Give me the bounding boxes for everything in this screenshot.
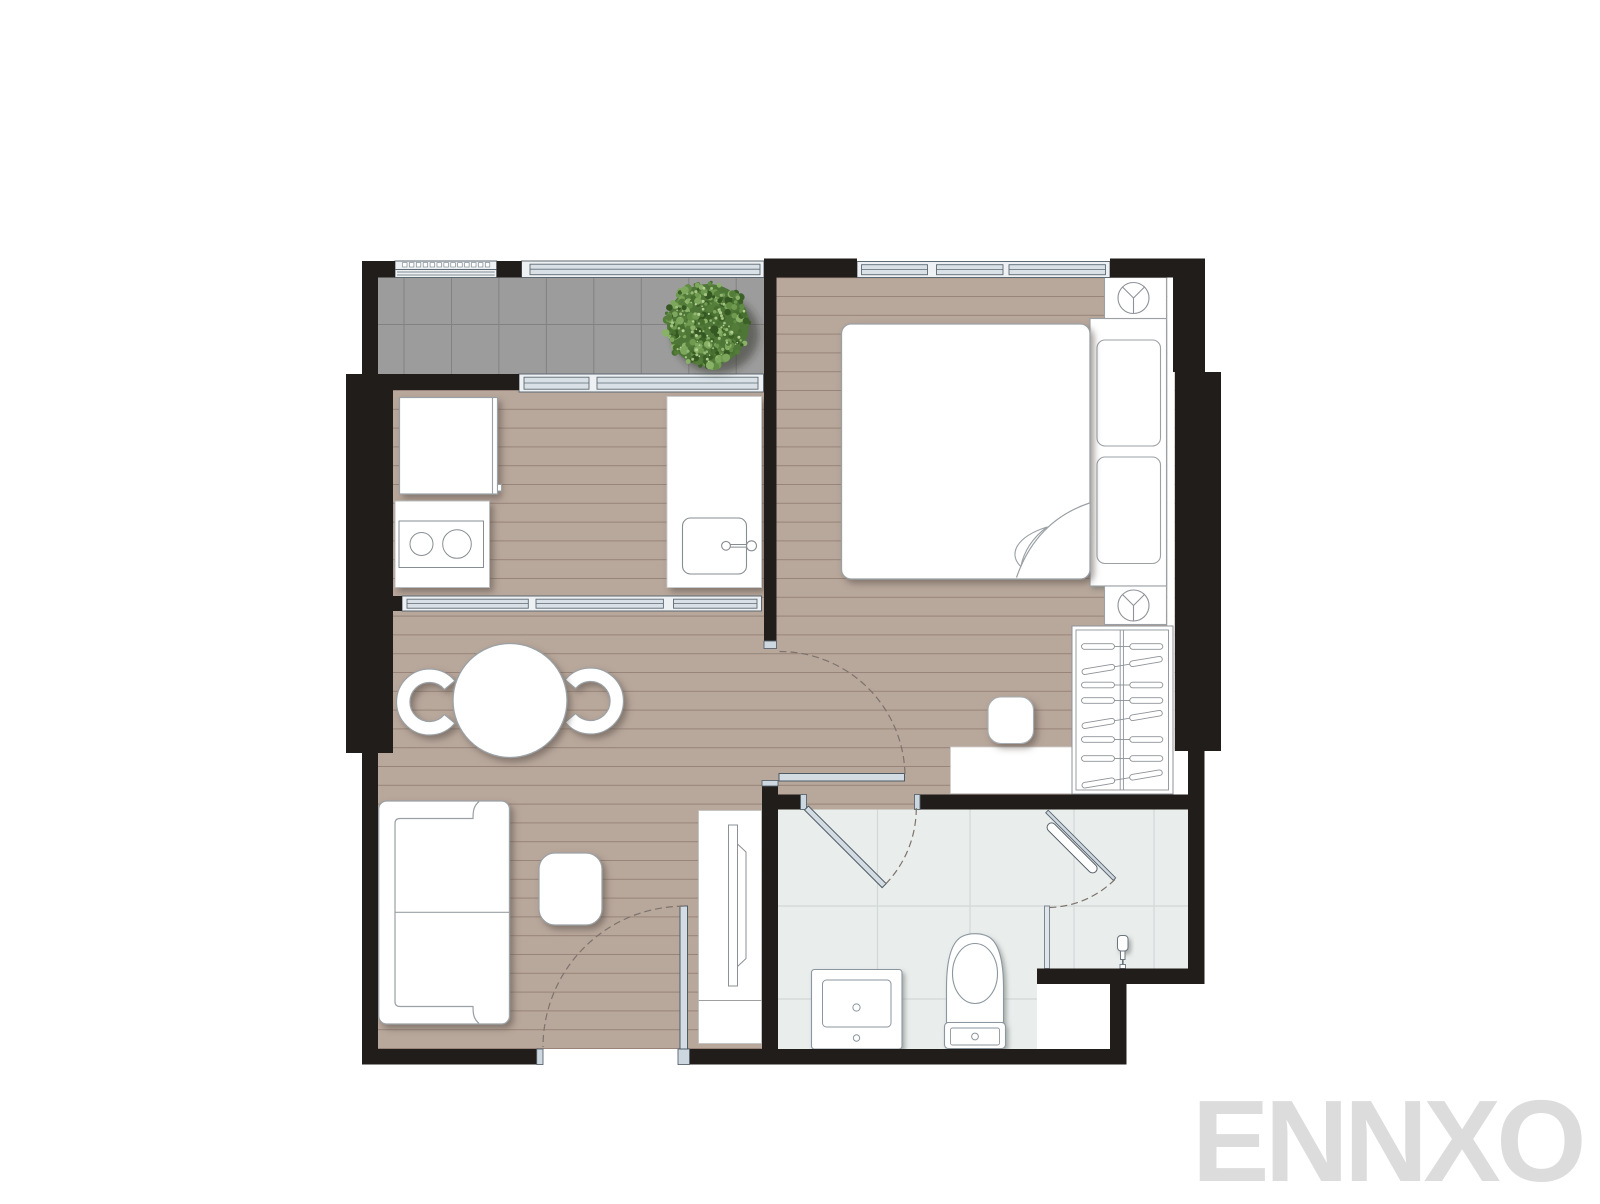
svg-text:ENNXO: ENNXO	[1192, 1076, 1582, 1204]
